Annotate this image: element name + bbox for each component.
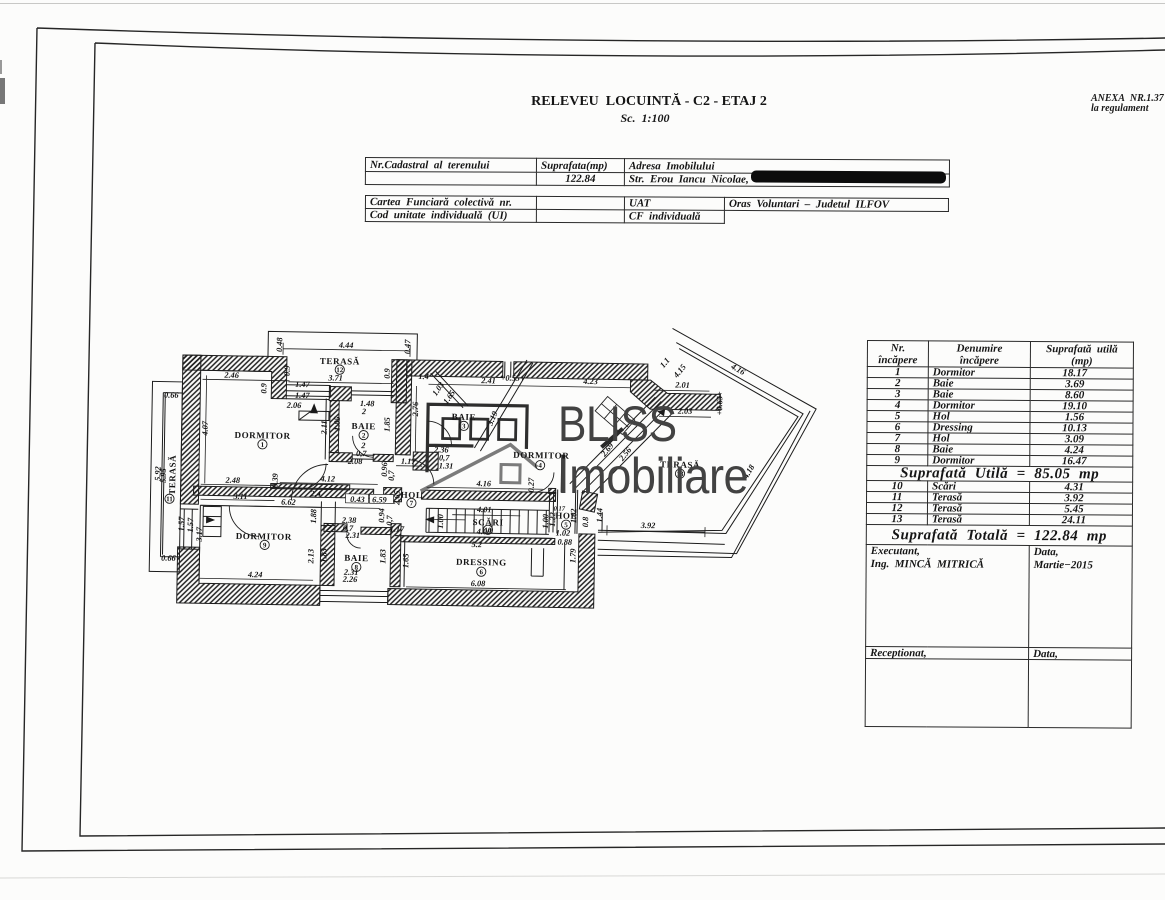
svg-text:0.43: 0.43	[350, 495, 365, 504]
svg-text:4.16: 4.16	[729, 361, 748, 377]
svg-text:0.39: 0.39	[271, 473, 280, 488]
svg-text:2.08: 2.08	[347, 457, 364, 466]
svg-text:2.03: 2.03	[677, 407, 693, 416]
svg-text:5: 5	[564, 521, 568, 529]
svg-text:5.2: 5.2	[471, 540, 482, 549]
svg-text:8: 8	[354, 563, 358, 571]
svg-text:HOL: HOL	[555, 510, 577, 520]
svg-text:2.13: 2.13	[306, 549, 315, 565]
svg-text:4.24: 4.24	[247, 570, 263, 579]
svg-text:2.26: 2.26	[342, 575, 359, 584]
svg-text:0,7: 0,7	[385, 514, 394, 525]
svg-text:6.62: 6.62	[281, 498, 296, 507]
svg-text:1.83: 1.83	[319, 548, 328, 563]
svg-text:0.66: 0.66	[161, 554, 177, 563]
svg-text:1.47: 1.47	[295, 380, 311, 389]
svg-text:0.9: 0.9	[259, 383, 268, 394]
svg-text:9: 9	[263, 541, 267, 549]
svg-text:0.8: 0.8	[581, 516, 590, 527]
svg-text:0.47: 0.47	[403, 339, 412, 355]
svg-text:1.85: 1.85	[383, 417, 392, 432]
svg-text:TERASĂ: TERASĂ	[167, 455, 178, 495]
svg-text:2.76: 2.76	[411, 401, 420, 418]
svg-text:1.17: 1.17	[401, 457, 417, 466]
svg-text:2.4: 2.4	[309, 489, 321, 498]
svg-text:2.41: 2.41	[480, 376, 496, 385]
svg-text:3: 3	[462, 422, 466, 430]
svg-text:4.23: 4.23	[582, 377, 598, 386]
svg-text:1.79: 1.79	[568, 548, 577, 563]
svg-text:3.71: 3.71	[327, 373, 343, 382]
svg-text:2.01: 2.01	[674, 381, 690, 390]
svg-text:1.02: 1.02	[556, 528, 571, 537]
svg-text:1.88: 1.88	[309, 508, 318, 524]
svg-text:BAIE: BAIE	[351, 421, 376, 431]
svg-text:DRESSING: DRESSING	[456, 557, 507, 568]
svg-text:2: 2	[362, 432, 366, 440]
svg-text:4.15: 4.15	[671, 363, 688, 381]
svg-text:1.44: 1.44	[595, 508, 604, 523]
svg-text:6.59: 6.59	[372, 495, 387, 504]
svg-text:10: 10	[484, 526, 492, 534]
svg-text:1.03: 1.03	[431, 380, 447, 397]
svg-text:1.85: 1.85	[333, 416, 342, 431]
svg-text:BAIE: BAIE	[344, 553, 369, 563]
svg-text:2.46: 2.46	[223, 371, 240, 380]
svg-text:4.01: 4.01	[476, 505, 492, 514]
svg-text:2.31: 2.31	[345, 531, 361, 540]
svg-text:BAIE: BAIE	[452, 412, 477, 422]
svg-text:+0.65+: +0.65+	[715, 391, 724, 415]
svg-text:0.88: 0.88	[557, 538, 573, 547]
svg-text:2.06: 2.06	[286, 401, 303, 410]
svg-text:2: 2	[361, 407, 366, 416]
svg-text:1.4: 1.4	[418, 372, 429, 381]
svg-text:1: 1	[261, 441, 265, 449]
svg-text:1.65: 1.65	[401, 554, 410, 569]
svg-text:3.17: 3.17	[195, 526, 204, 543]
svg-text:4.07: 4.07	[201, 420, 210, 437]
svg-text:DORMITOR: DORMITOR	[234, 430, 290, 441]
svg-text:6.08: 6.08	[471, 579, 487, 588]
svg-text:4.16: 4.16	[475, 479, 492, 488]
svg-text:6: 6	[479, 568, 483, 576]
svg-text:2.11: 2.11	[320, 420, 329, 435]
svg-text:11: 11	[166, 495, 173, 503]
svg-text:7: 7	[410, 499, 414, 507]
svg-text:2.48: 2.48	[224, 476, 241, 485]
svg-text:4.12: 4.12	[319, 474, 335, 483]
svg-text:0.9: 0.9	[283, 366, 292, 377]
svg-text:+0.55+: +0.55+	[501, 373, 525, 382]
svg-text:1.31: 1.31	[439, 461, 454, 470]
svg-text:1.83: 1.83	[378, 549, 387, 564]
svg-text:4: 4	[538, 462, 542, 470]
svg-text:0.66: 0.66	[164, 391, 180, 400]
svg-text:3.92: 3.92	[640, 521, 656, 530]
svg-text:1.57: 1.57	[186, 517, 195, 533]
svg-text:3.11: 3.11	[232, 492, 247, 501]
svg-text:12: 12	[336, 366, 344, 374]
svg-text:1.57: 1.57	[177, 516, 186, 532]
svg-text:0.48: 0.48	[275, 336, 284, 352]
svg-text:1.00: 1.00	[436, 514, 445, 529]
svg-text:1.1: 1.1	[658, 356, 672, 370]
svg-text:0.27: 0.27	[527, 477, 536, 493]
svg-text:0,7: 0,7	[387, 469, 396, 480]
svg-text:1.47: 1.47	[295, 391, 311, 400]
svg-text:4.44: 4.44	[338, 341, 354, 350]
svg-text:0.9: 0.9	[383, 368, 392, 379]
